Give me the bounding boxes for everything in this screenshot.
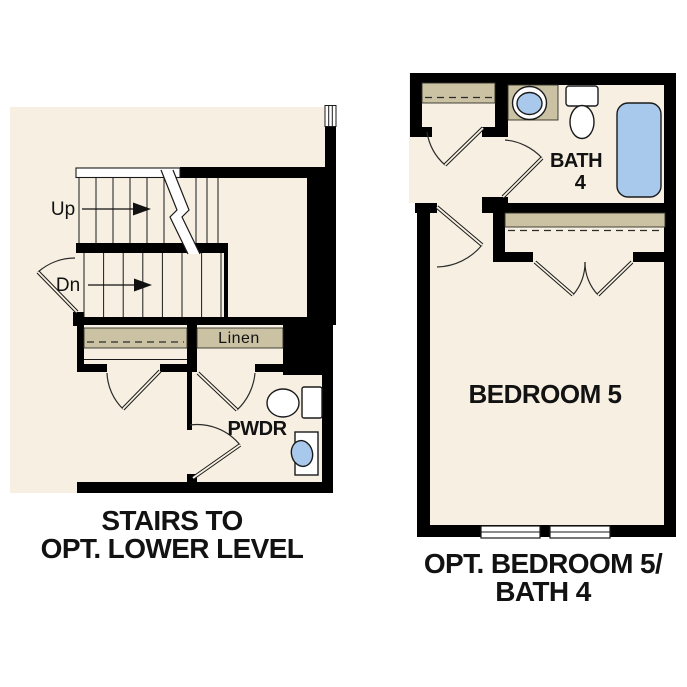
right-caption-line2: BATH 4 bbox=[495, 576, 591, 607]
right-caption-line1: OPT. BEDROOM 5/ bbox=[424, 548, 663, 579]
bath-vanity-fixture bbox=[508, 85, 558, 120]
left-caption-line2: OPT. LOWER LEVEL bbox=[41, 533, 304, 564]
floorplan-page: Up Dn Linen bbox=[0, 0, 687, 687]
linen-closet: Linen bbox=[197, 328, 283, 348]
floorplan-canvas: Up Dn Linen bbox=[0, 0, 687, 687]
window-symbol bbox=[325, 106, 336, 127]
left-floor-plan: Up Dn Linen bbox=[10, 106, 336, 565]
bath-label-line1: BATH bbox=[550, 150, 602, 172]
left-plan-caption: STAIRS TO OPT. LOWER LEVEL bbox=[41, 505, 304, 564]
bedroom-label: BEDROOM 5 bbox=[469, 379, 622, 409]
linen-label: Linen bbox=[218, 330, 260, 347]
entry-closet bbox=[422, 83, 495, 103]
powder-room-label: PWDR bbox=[227, 418, 287, 440]
bath-label-line2: 4 bbox=[575, 172, 587, 194]
bathtub-fixture bbox=[617, 103, 661, 197]
up-label: Up bbox=[51, 199, 75, 220]
right-floor-plan: BATH 4 BEDROOM 5 bbox=[409, 73, 676, 607]
right-plan-caption: OPT. BEDROOM 5/ BATH 4 bbox=[424, 548, 663, 607]
left-caption-line1: STAIRS TO bbox=[101, 505, 242, 536]
